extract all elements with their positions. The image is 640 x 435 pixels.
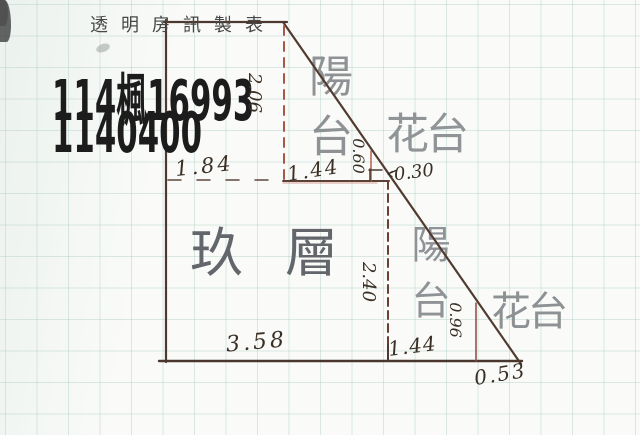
dimension-room-bottom-width: 3.58	[225, 329, 288, 356]
dimension-flower-upper-height: 0.60	[350, 138, 366, 174]
outline-diagonal-edge	[283, 22, 521, 364]
document-number-secondary: 1140400	[52, 106, 202, 162]
dimension-flower-upper-width: 0.30	[393, 162, 435, 185]
dimension-balcony-lower-width: 1.44	[387, 333, 438, 359]
scanned-floorplan-page: 透明房訊製表 114楓16993 1140400 陽台 花台 玖層 陽台 花台 …	[0, 0, 640, 435]
floor-plan-lines	[0, 0, 640, 435]
dimension-room-height: 2.40	[359, 262, 377, 302]
dimension-balcony-lower-height: 0.96	[447, 302, 463, 338]
page-header-title: 透明房訊製表	[90, 11, 276, 37]
dimension-left-edge-height: 2.06	[245, 73, 263, 113]
